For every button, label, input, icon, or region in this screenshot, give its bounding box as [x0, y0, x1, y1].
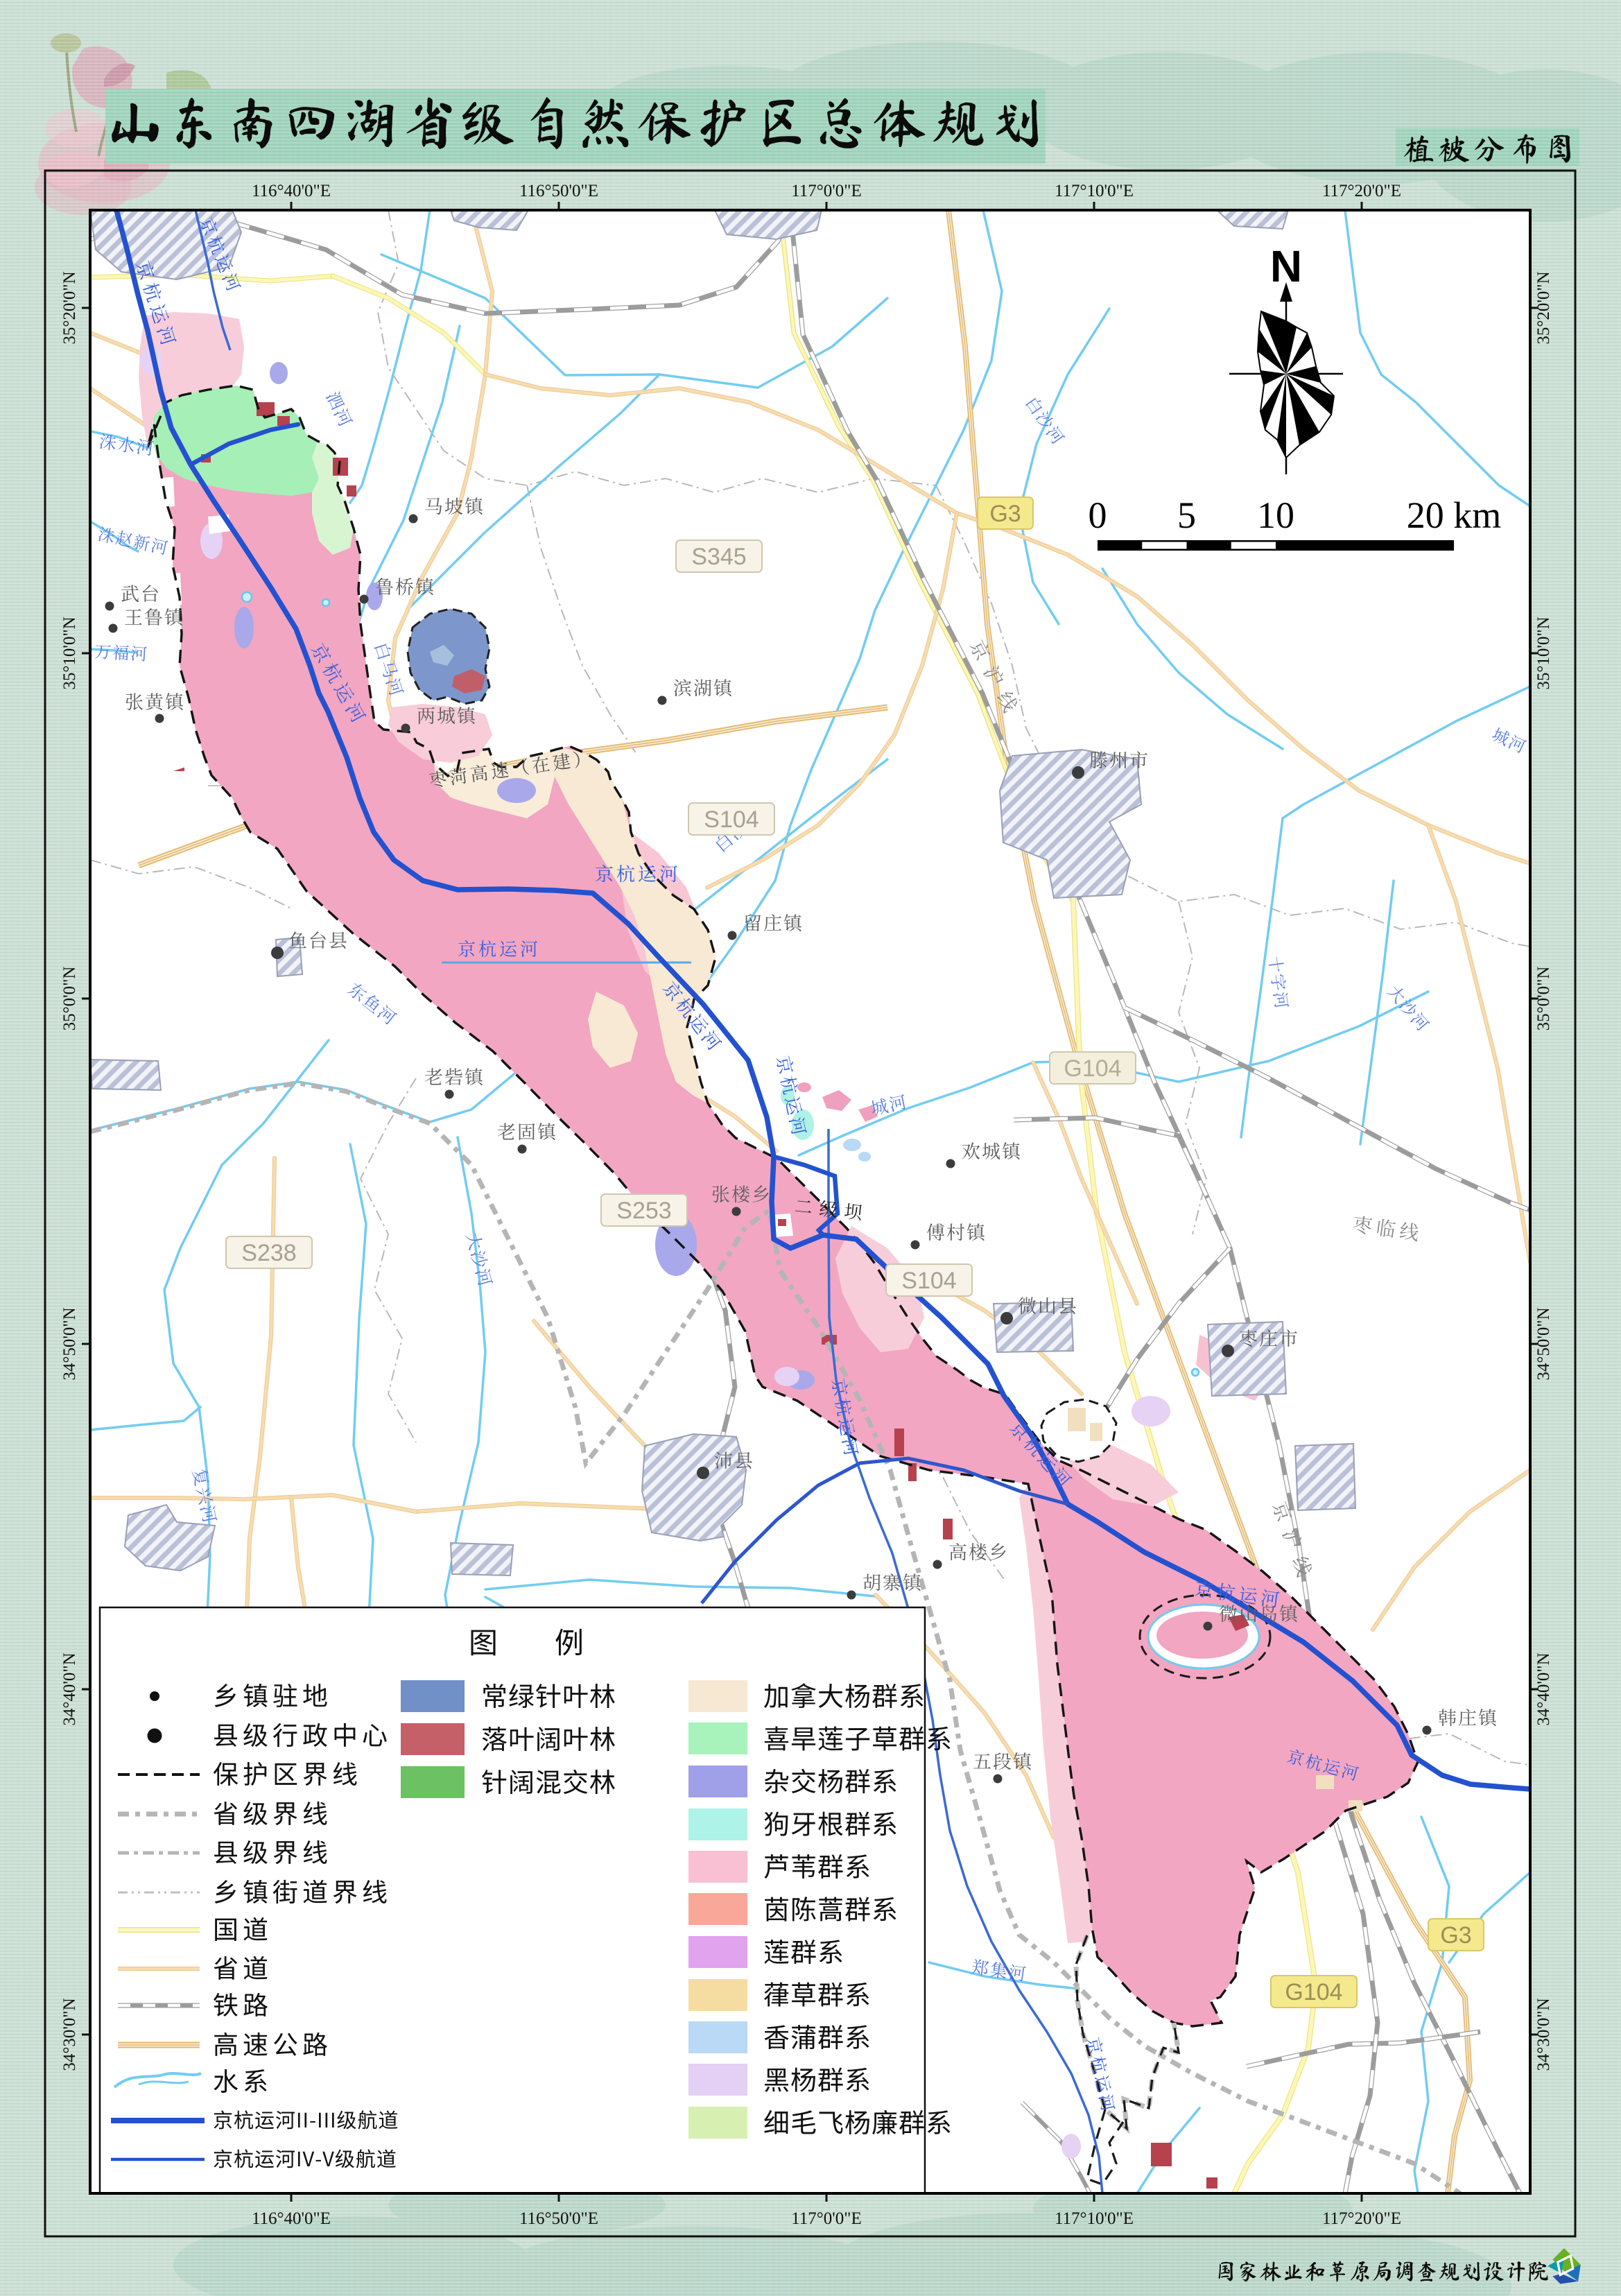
svg-text:N: N	[1270, 241, 1302, 291]
svg-text:117°20'0"E: 117°20'0"E	[1322, 2209, 1401, 2228]
svg-text:34°50'0"N: 34°50'0"N	[60, 1307, 79, 1380]
svg-text:116°50'0"E: 116°50'0"E	[519, 2209, 598, 2228]
svg-text:35°20'0"N: 35°20'0"N	[60, 271, 79, 344]
svg-text:34°30'0"N: 34°30'0"N	[60, 1998, 79, 2071]
svg-text:117°0'0"E: 117°0'0"E	[791, 182, 862, 200]
svg-text:G3: G3	[1440, 1922, 1471, 1949]
svg-text:116°40'0"E: 116°40'0"E	[252, 2209, 331, 2228]
svg-text:117°10'0"E: 117°10'0"E	[1055, 2209, 1134, 2228]
svg-text:S238: S238	[241, 1240, 296, 1266]
svg-text:35°0'0"N: 35°0'0"N	[1534, 967, 1553, 1031]
svg-text:5: 5	[1177, 494, 1196, 536]
svg-text:117°20'0"E: 117°20'0"E	[1322, 182, 1401, 200]
svg-text:34°50'0"N: 34°50'0"N	[1534, 1307, 1553, 1380]
svg-text:S345: S345	[691, 544, 746, 570]
svg-text:34°40'0"N: 34°40'0"N	[60, 1652, 79, 1725]
svg-text:35°10'0"N: 35°10'0"N	[60, 616, 79, 689]
svg-text:G104: G104	[1064, 1055, 1121, 1082]
svg-text:116°40'0"E: 116°40'0"E	[252, 182, 331, 200]
svg-text:S253: S253	[616, 1198, 671, 1224]
svg-text:35°10'0"N: 35°10'0"N	[1534, 616, 1553, 689]
svg-text:116°50'0"E: 116°50'0"E	[519, 182, 598, 200]
svg-text:35°20'0"N: 35°20'0"N	[1534, 271, 1553, 344]
svg-text:S104: S104	[704, 806, 759, 833]
svg-text:35°0'0"N: 35°0'0"N	[60, 967, 79, 1031]
svg-text:S104: S104	[901, 1268, 956, 1294]
svg-text:117°0'0"E: 117°0'0"E	[791, 2209, 862, 2228]
svg-text:0: 0	[1089, 494, 1107, 536]
svg-text:10: 10	[1257, 494, 1294, 536]
svg-text:G3: G3	[989, 501, 1021, 527]
svg-text:34°40'0"N: 34°40'0"N	[1534, 1652, 1553, 1725]
svg-text:20 km: 20 km	[1407, 494, 1502, 536]
svg-text:117°10'0"E: 117°10'0"E	[1055, 182, 1134, 200]
svg-text:34°30'0"N: 34°30'0"N	[1534, 1998, 1553, 2071]
svg-text:G104: G104	[1285, 1979, 1342, 2005]
